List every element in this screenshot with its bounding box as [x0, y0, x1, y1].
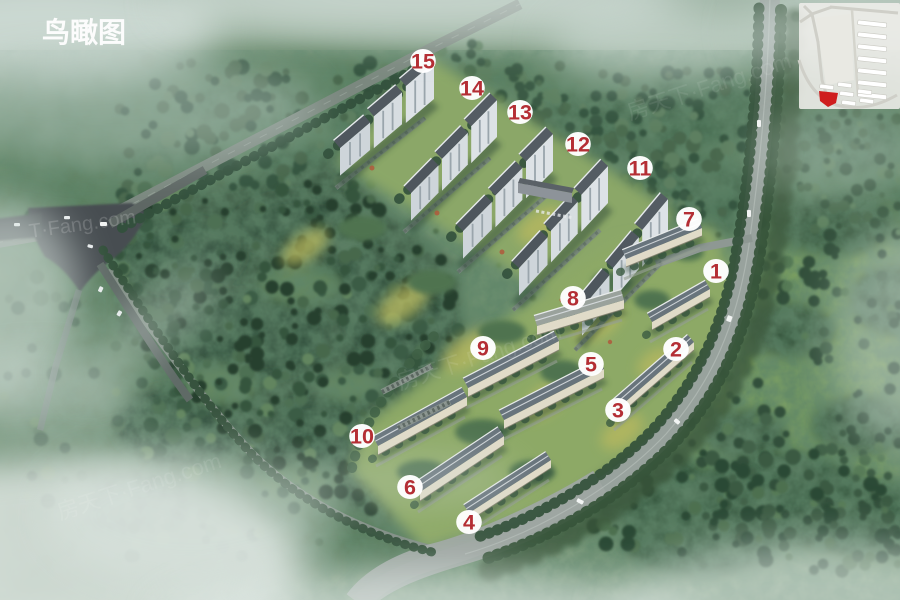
svg-text:3: 3 [612, 399, 624, 423]
svg-text:6: 6 [404, 476, 416, 500]
svg-text:4: 4 [463, 511, 475, 535]
svg-text:12: 12 [566, 133, 590, 157]
svg-text:14: 14 [460, 77, 484, 101]
svg-text:7: 7 [683, 208, 695, 232]
svg-text:1: 1 [710, 260, 722, 284]
svg-text:11: 11 [629, 157, 652, 181]
svg-text:8: 8 [567, 287, 579, 311]
svg-text:2: 2 [670, 338, 682, 362]
svg-text:鸟瞰图: 鸟瞰图 [42, 16, 126, 48]
svg-text:15: 15 [411, 50, 435, 74]
svg-text:5: 5 [585, 353, 597, 377]
svg-text:10: 10 [350, 425, 374, 449]
svg-text:13: 13 [508, 101, 532, 125]
svg-text:9: 9 [477, 337, 489, 361]
